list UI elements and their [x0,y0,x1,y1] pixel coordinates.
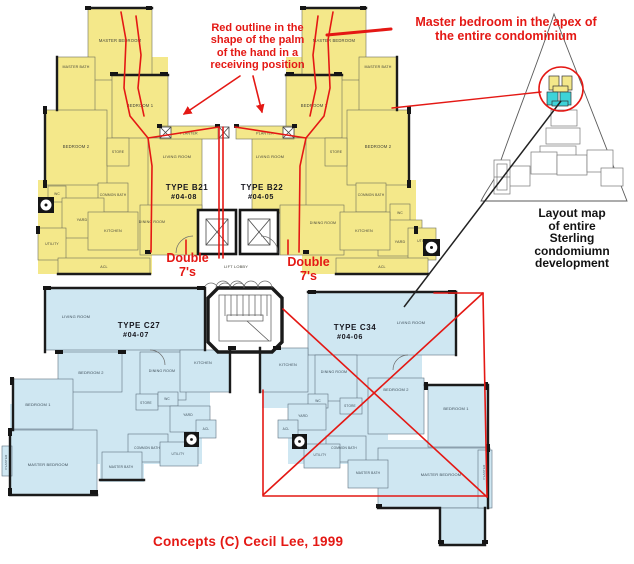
room-label: UTILITY [314,453,328,457]
room-label: ACL [203,427,210,431]
room-label: BEDROOM 2 [383,387,409,392]
room-label: LIVING ROOM [256,154,284,159]
unit-type-label: TYPE C27 [118,321,161,330]
room-label: DINING ROOM [149,369,175,373]
room-label: BEDROOM 1 [25,402,51,407]
layout-map-caption: Layout map of entire Sterling condomiumn… [512,207,632,270]
room-label: LIVING ROOM [163,154,191,159]
room-label: UTILITY [45,242,59,246]
room-label: STORE [344,404,356,408]
room-label: KITCHEN [279,363,297,367]
room-label: WC [164,397,170,401]
unit-number-label: #04-05 [248,192,274,201]
credit-line: Concepts (C) Cecil Lee, 1999 [153,534,453,549]
unit-number-label: #04-08 [171,192,197,201]
room-label: BEDROOM 2 [365,144,392,149]
room-label: PLANTER [482,464,486,480]
room-label: YARD [183,413,193,417]
room-label: BEDROOM 1 [443,406,469,411]
room-label: YARD [298,414,308,418]
room-label: KITCHEN [104,229,122,233]
room-label: MASTER BATH [356,471,381,475]
room-label: LIVING ROOM [62,314,90,319]
room-label: ACL [283,427,290,431]
room-label: STORE [140,401,152,405]
room-label: DINING ROOM [321,370,347,374]
room-label: WC [315,399,321,403]
floor-plan-page: MASTER BEDROOM MASTER BATH BEDROOM 1 BED… [0,0,634,564]
room-label: STORE [112,150,125,154]
room-label: YARD [395,240,406,244]
unit-number-label: #04-06 [337,332,363,341]
double-7s-right: Double 7's [281,255,336,283]
room-label: UTILITY [172,452,186,456]
room-label: WC [54,192,60,196]
room-label: BEDROOM 1 [301,103,328,108]
lift-lobby-label: LIFT LOBBY [224,264,248,269]
room-label: BEDROOM 2 [63,144,90,149]
room-label: STORE [330,150,343,154]
room-label: BEDROOM 1 [127,103,154,108]
palm-arrow-left [184,76,240,114]
apex-note: Master bedroom in the apex of the entire… [380,15,632,43]
palm-arrow-right [253,76,262,112]
room-label: KITCHEN [355,229,373,233]
double-7s-left: Double 7's [160,251,215,279]
room-label: WC [397,211,403,215]
room-label: BEDROOM 2 [78,370,104,375]
room-label: ACL [100,265,107,269]
unit-type-label: TYPE B22 [241,183,284,192]
room-label: MASTER BEDROOM [28,462,69,467]
room-label: DINING ROOM [310,221,336,225]
unit-c27: LIVING ROOM BEDROOM 2 BEDROOM 1 MASTER B… [2,288,230,495]
palm-note: Red outline in the shape of the palm of … [150,22,365,71]
room-label: MASTER BATH [109,465,134,469]
map-pointer-line [404,101,561,307]
room-label: COMMON BATH [331,446,357,450]
unit-number-label: #04-07 [123,330,149,339]
room-label: COMMON BATH [134,446,160,450]
room-label: KITCHEN [194,361,212,365]
unit-type-label: TYPE C34 [334,323,377,332]
room-label: MASTER BEDROOM [421,472,462,477]
room-label: COMMON BATH [358,193,385,197]
room-label: COMMON BATH [100,193,127,197]
unit-type-label: TYPE B21 [166,183,209,192]
room-label: MASTER BATH [365,65,392,69]
room-label: LIVING ROOM [397,320,425,325]
map-leader-line [392,92,541,108]
room-label: MASTER BATH [63,65,90,69]
room-label: MASTER BEDROOM [99,38,142,43]
room-label: YARD [77,218,88,222]
room-label: ACL [378,265,385,269]
room-label: PLANTER [4,454,8,470]
